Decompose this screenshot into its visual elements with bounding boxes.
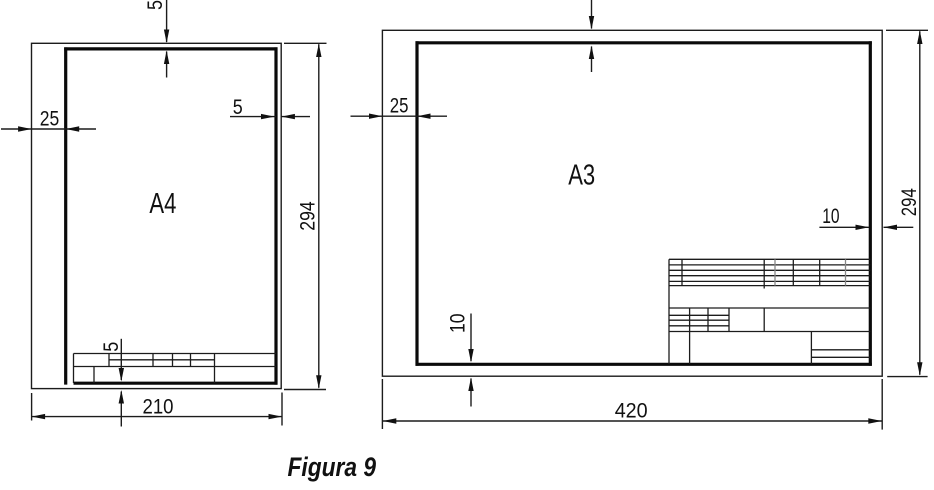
- svg-text:5: 5: [144, 0, 167, 10]
- svg-text:5: 5: [233, 96, 243, 119]
- svg-text:5: 5: [100, 342, 123, 352]
- svg-text:420: 420: [615, 399, 648, 422]
- svg-text:25: 25: [40, 107, 60, 130]
- svg-text:25: 25: [390, 95, 409, 118]
- svg-text:A3: A3: [568, 160, 595, 192]
- svg-text:294: 294: [898, 188, 921, 216]
- svg-text:210: 210: [143, 396, 174, 419]
- svg-text:10: 10: [447, 314, 470, 334]
- svg-text:Figura 9: Figura 9: [288, 452, 377, 482]
- svg-text:A4: A4: [149, 188, 176, 220]
- svg-text:294: 294: [297, 201, 320, 231]
- svg-text:10: 10: [822, 205, 839, 228]
